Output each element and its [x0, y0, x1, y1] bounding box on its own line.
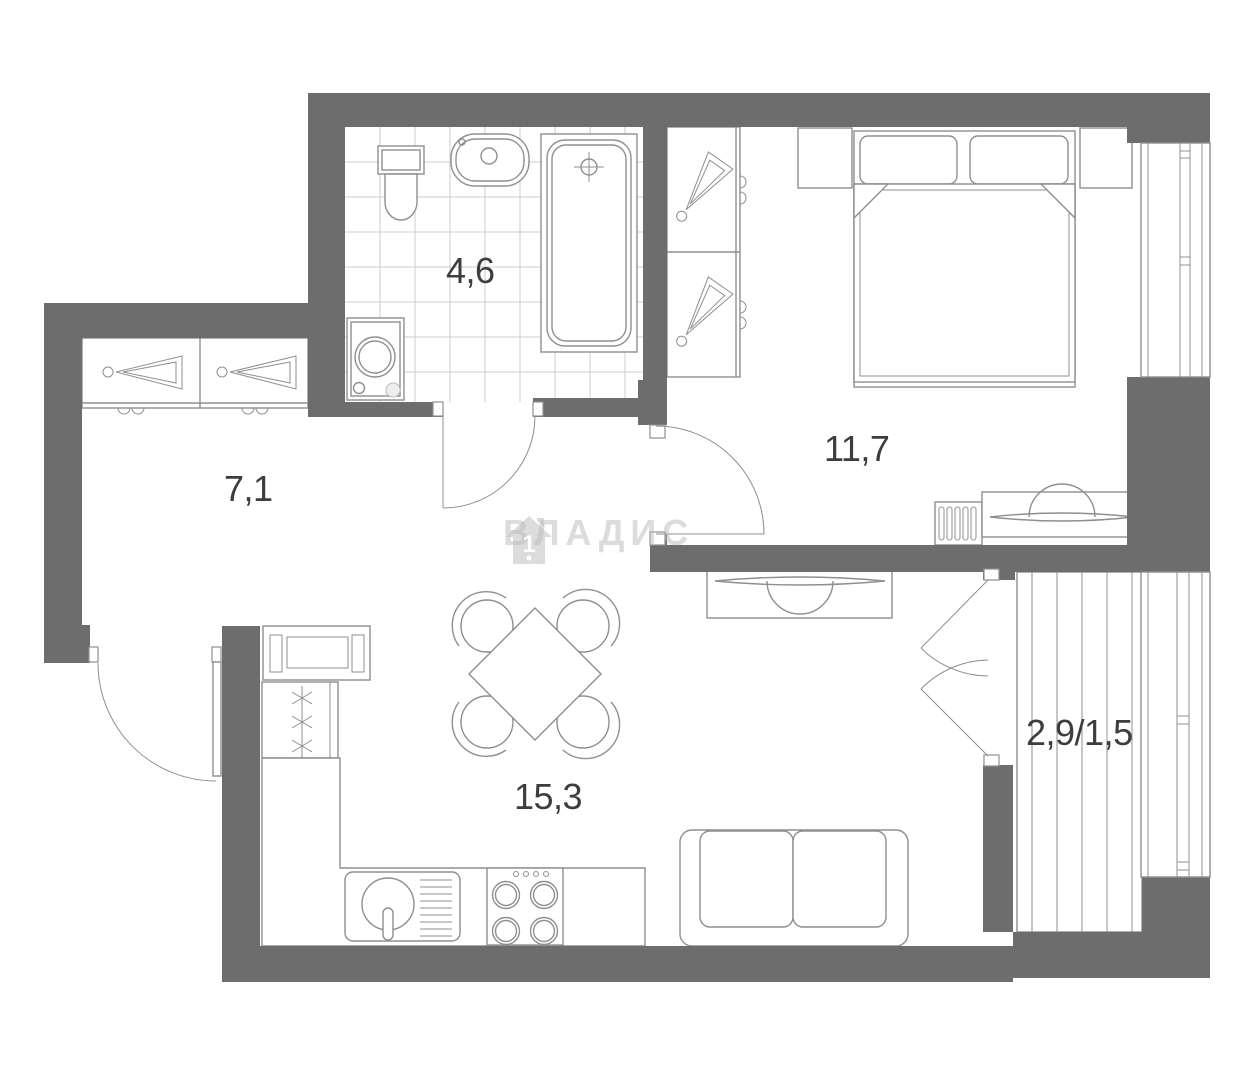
bedroom-door — [656, 426, 764, 534]
bathroom-door — [443, 416, 535, 508]
dressing-table — [982, 484, 1142, 537]
blanket — [854, 184, 1075, 382]
pillow — [860, 136, 957, 184]
nightstand — [1080, 128, 1132, 188]
balcony-door — [921, 580, 988, 756]
stove — [487, 868, 563, 945]
toilet — [378, 146, 424, 220]
bathtub — [541, 134, 637, 352]
dining-table — [469, 608, 601, 740]
sofa — [680, 830, 908, 946]
tv-stand — [707, 567, 892, 618]
refrigerator — [262, 682, 338, 758]
bed — [854, 131, 1075, 387]
room-label-bathroom: 4,6 — [446, 250, 495, 292]
bedroom-window — [1141, 143, 1210, 377]
kitchen-cabinet — [263, 626, 370, 680]
washing-machine — [347, 318, 404, 400]
balcony-window — [1141, 572, 1210, 877]
room-label-bedroom: 11,7 — [824, 428, 889, 470]
room-label-kitchen-living: 15,3 — [514, 776, 582, 818]
entry-door — [98, 662, 221, 781]
room-label-balcony: 2,9/1,5 — [1026, 712, 1133, 754]
bedroom-wardrobe — [666, 127, 746, 377]
hallway-wardrobe — [82, 338, 308, 414]
room-label-hallway: 7,1 — [224, 468, 273, 510]
floor-plan: 4,6 7,1 11,7 15,3 2,9/1,5 1 ВЛАДИС — [0, 0, 1254, 1075]
radiator — [935, 502, 982, 545]
nightstand — [798, 128, 852, 188]
pillow — [970, 136, 1068, 184]
floor-plan-canvas — [0, 0, 1254, 1075]
kitchen-sink — [345, 872, 460, 941]
bathroom-sink — [451, 134, 529, 186]
